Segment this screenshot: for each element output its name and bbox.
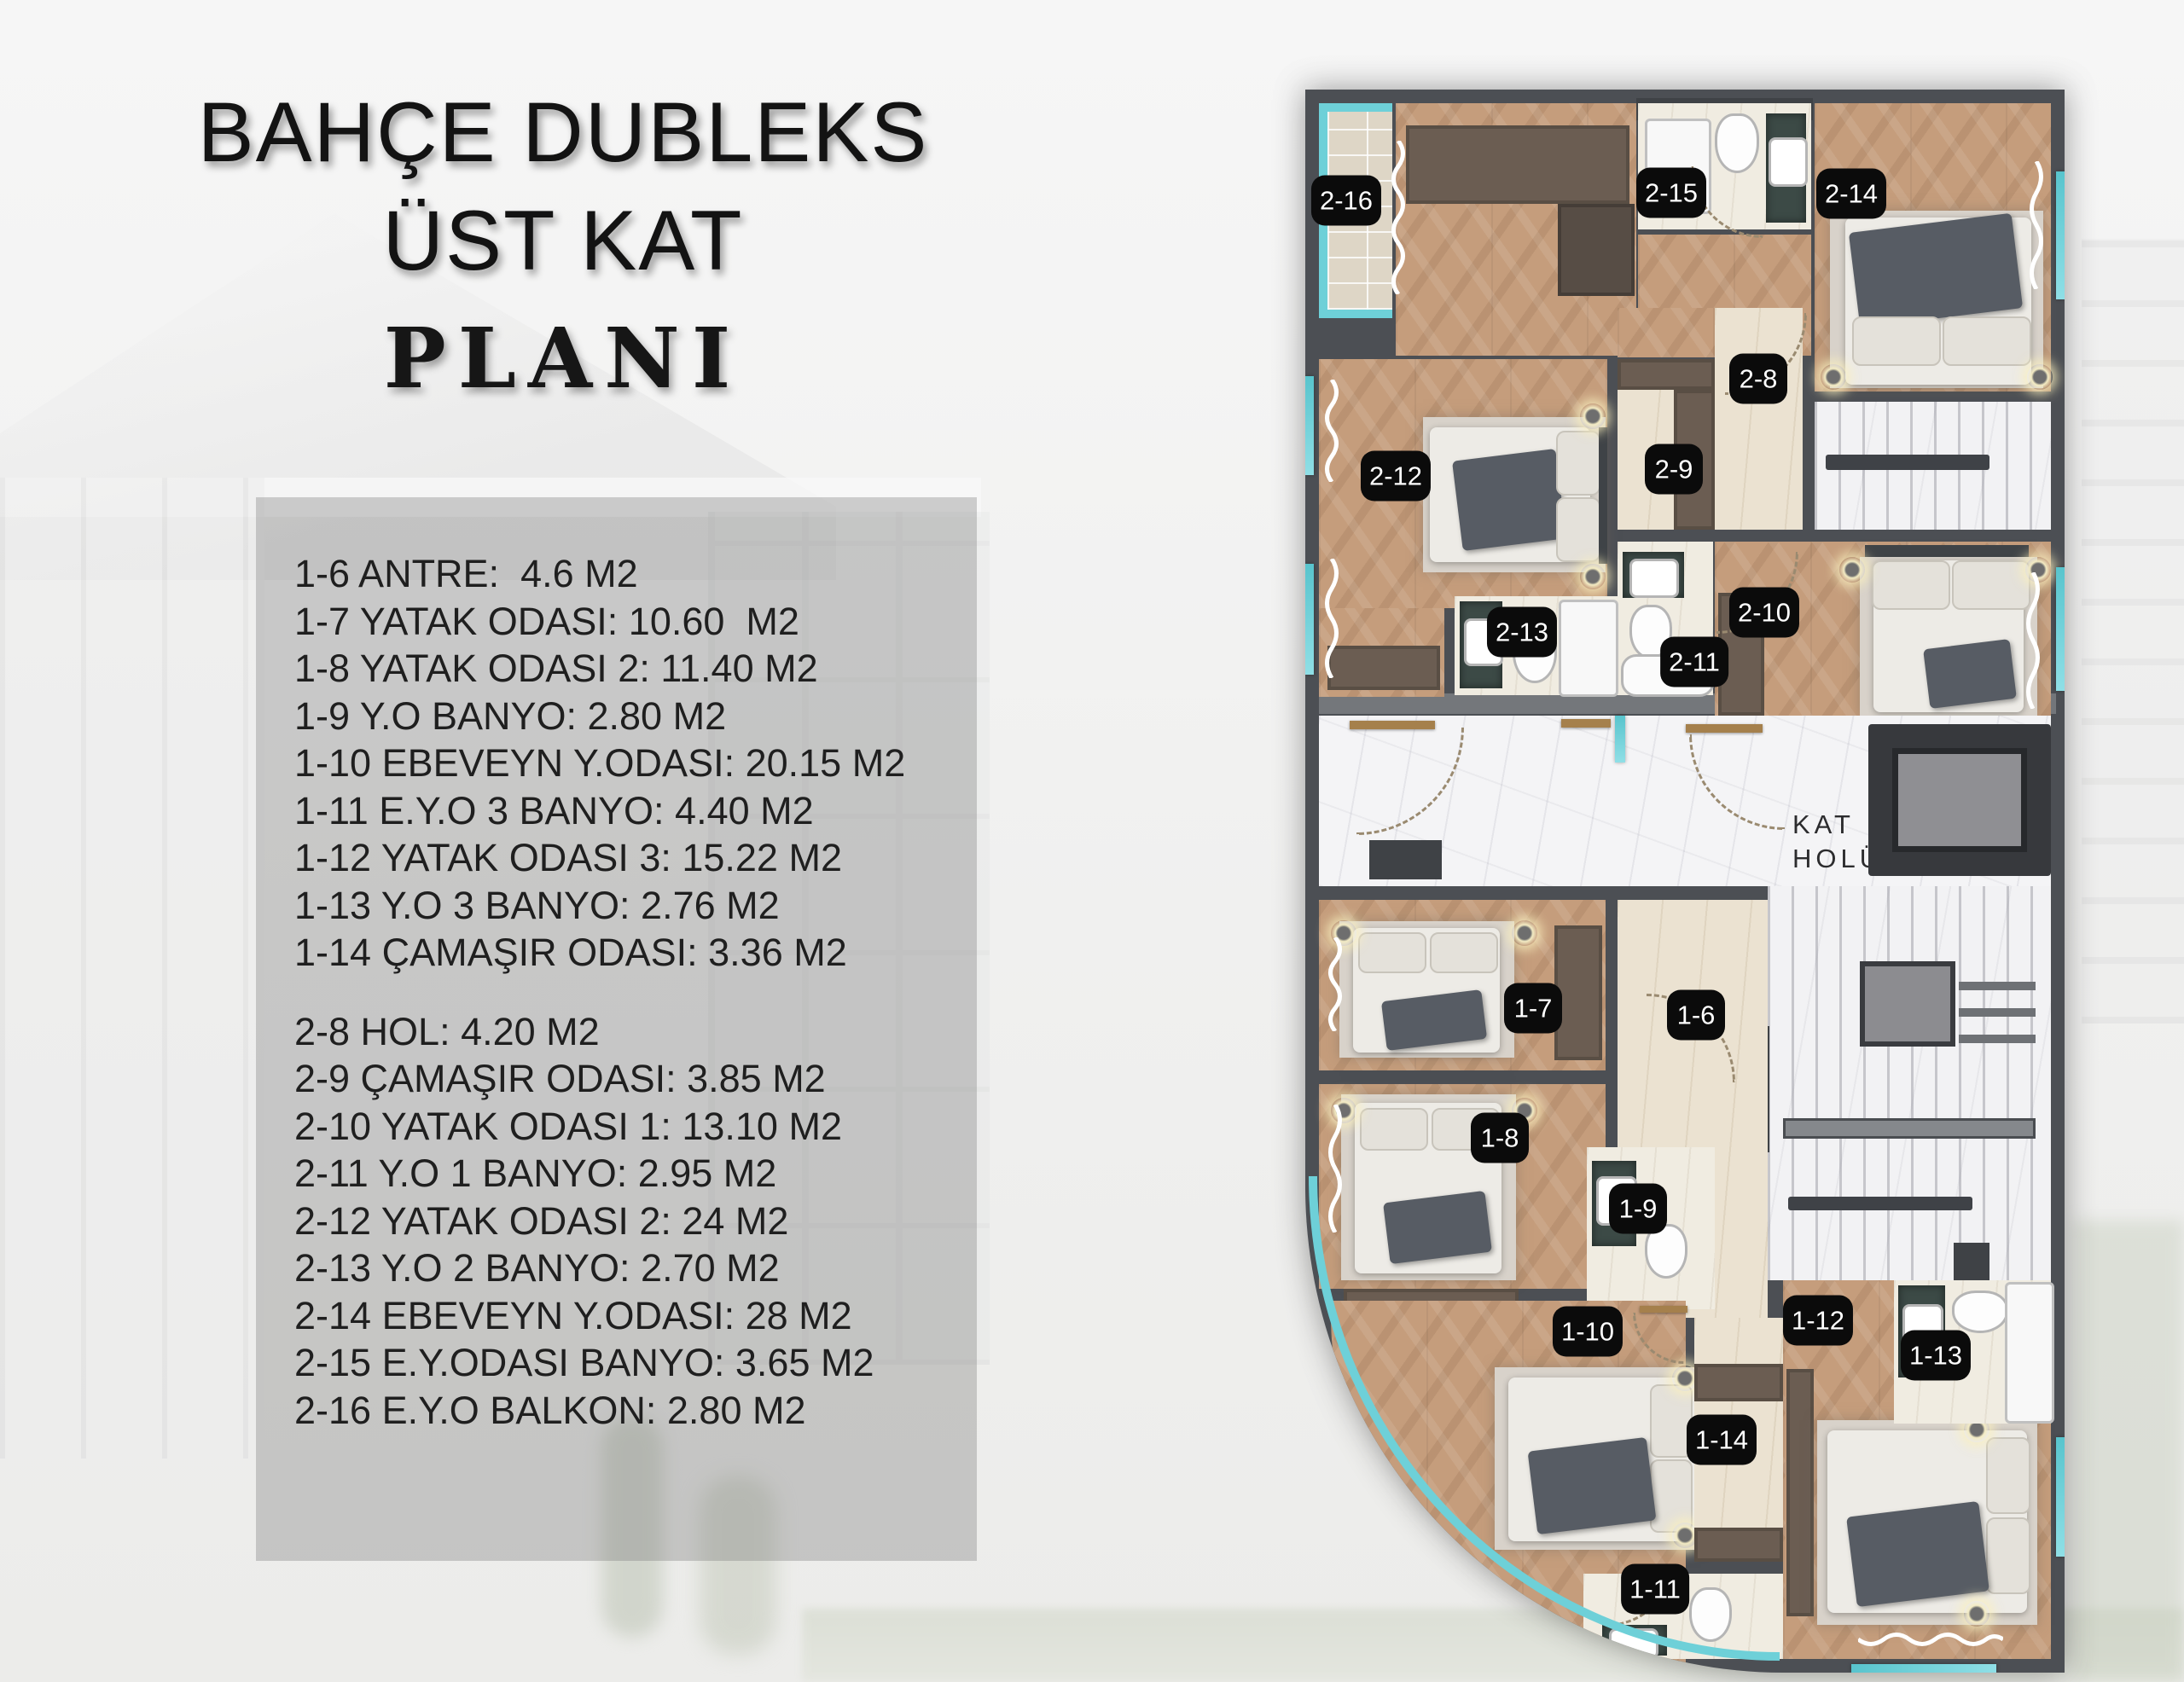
curtain bbox=[2027, 161, 2046, 289]
room-list-item: 1-7 YATAK ODASI: 10.60 M2 bbox=[294, 598, 905, 646]
room-badge-2-11: 2-11 bbox=[1660, 637, 1728, 687]
room-badge-1-10: 1-10 bbox=[1553, 1307, 1623, 1357]
sconce-light bbox=[1821, 364, 1846, 390]
page-title-line1: BAHÇE DUBLEKS bbox=[145, 78, 981, 187]
bed-throw bbox=[1846, 1501, 1989, 1607]
sconce-light bbox=[1580, 564, 1606, 589]
curtain bbox=[1858, 1630, 2003, 1649]
page-title-line3: PLANI bbox=[145, 310, 981, 407]
pillow bbox=[1986, 1437, 2030, 1514]
bed-throw bbox=[1452, 449, 1566, 551]
room-badge-2-13: 2-13 bbox=[1487, 607, 1557, 658]
sink bbox=[1629, 559, 1679, 598]
room-badge-1-14: 1-14 bbox=[1687, 1415, 1757, 1465]
pillow bbox=[1430, 932, 1498, 973]
window-glass bbox=[2056, 171, 2065, 299]
page: BAHÇE DUBLEKS ÜST KAT PLANI 1-6 ANTRE: 4… bbox=[0, 0, 2184, 1682]
wardrobe bbox=[1558, 204, 1635, 296]
room-list-item: 2-8 HOL: 4.20 M2 bbox=[294, 1008, 905, 1056]
room-list-item: 1-11 E.Y.O 3 BANYO: 4.40 M2 bbox=[294, 787, 905, 835]
pillow bbox=[1556, 431, 1600, 496]
pillow bbox=[1943, 316, 2031, 366]
wall bbox=[1954, 1243, 1989, 1282]
sconce-light bbox=[1839, 557, 1865, 583]
curtain bbox=[1326, 1105, 1345, 1232]
room-badge-2-9: 2-9 bbox=[1645, 444, 1703, 495]
sconce-light bbox=[1512, 920, 1537, 946]
hall-cabinet bbox=[1369, 840, 1442, 879]
elevator-cab bbox=[1892, 748, 2027, 852]
bed-headboard bbox=[1599, 427, 1607, 564]
room-badge-2-15: 2-15 bbox=[1636, 168, 1706, 218]
wardrobe bbox=[1406, 125, 1629, 204]
shower-tray bbox=[2005, 1282, 2054, 1424]
room-list-item: 2-9 ÇAMAŞIR ODASI: 3.85 M2 bbox=[294, 1055, 905, 1103]
room-list-item: 1-14 ÇAMAŞIR ODASI: 3.36 M2 bbox=[294, 929, 905, 977]
pillow bbox=[1556, 497, 1600, 562]
window-glass bbox=[1305, 564, 1314, 675]
toilet bbox=[1952, 1290, 2008, 1333]
stair-handrail bbox=[1788, 1197, 1972, 1210]
pillow bbox=[1852, 316, 1941, 366]
room-badge-1-9: 1-9 bbox=[1609, 1184, 1667, 1234]
sink bbox=[1769, 137, 1808, 187]
stair-handrail bbox=[1826, 455, 1989, 470]
page-title-line2: ÜST KAT bbox=[145, 187, 981, 295]
background-house-wall bbox=[0, 478, 264, 1459]
bed-throw bbox=[1849, 213, 2023, 328]
room-list-item: 2-11 Y.O 1 BANYO: 2.95 M2 bbox=[294, 1150, 905, 1198]
room-list-item: 2-16 E.Y.O BALKON: 2.80 M2 bbox=[294, 1387, 905, 1435]
room-list-item: 1-12 YATAK ODASI 3: 15.22 M2 bbox=[294, 834, 905, 882]
door-leaf bbox=[1686, 724, 1763, 733]
room-list-item: 2-12 YATAK ODASI 2: 24 M2 bbox=[294, 1198, 905, 1245]
glass-door bbox=[1615, 716, 1625, 763]
room-list-item: 1-9 Y.O BANYO: 2.80 M2 bbox=[294, 693, 905, 740]
background-plants bbox=[2073, 1220, 2184, 1680]
curtain bbox=[1326, 937, 1345, 1031]
room-badge-2-14: 2-14 bbox=[1816, 169, 1886, 219]
room-badge-1-6: 1-6 bbox=[1667, 990, 1725, 1041]
pillow bbox=[1952, 560, 2030, 610]
room-list-unit2: 2-8 HOL: 4.20 M22-9 ÇAMAŞIR ODASI: 3.85 … bbox=[294, 1008, 905, 1435]
curtain bbox=[1322, 380, 1341, 482]
stair-landing-wall bbox=[1783, 1118, 2036, 1139]
pillow bbox=[1872, 560, 1950, 610]
pillow bbox=[1360, 1108, 1428, 1151]
sconce-light bbox=[2027, 364, 2053, 390]
room-list-item: 2-14 EBEVEYN Y.ODASI: 28 M2 bbox=[294, 1292, 905, 1340]
cabinet bbox=[1618, 359, 1715, 390]
window-glass bbox=[1851, 1664, 1996, 1673]
floor-plan: KAT HOLÜ bbox=[1305, 90, 2065, 1673]
room-list-item: 1-13 Y.O 3 BANYO: 2.76 M2 bbox=[294, 882, 905, 930]
curtain bbox=[1389, 141, 1408, 294]
bed-throw bbox=[1923, 639, 2017, 709]
room-badge-2-10: 2-10 bbox=[1729, 588, 1799, 638]
room-badge-1-13: 1-13 bbox=[1901, 1331, 1971, 1381]
toilet bbox=[1715, 113, 1759, 173]
shower-tray bbox=[1559, 600, 1618, 697]
room-badge-1-8: 1-8 bbox=[1471, 1113, 1529, 1163]
curtain bbox=[1322, 559, 1341, 678]
stair-treads bbox=[1959, 970, 2036, 1043]
room-list-item: 1-10 EBEVEYN Y.ODASI: 20.15 M2 bbox=[294, 739, 905, 787]
room-badge-2-12: 2-12 bbox=[1361, 451, 1431, 502]
room-list-item: 1-8 YATAK ODASI 2: 11.40 M2 bbox=[294, 645, 905, 693]
bed-headboard bbox=[1865, 545, 2029, 557]
room-list-item: 2-13 Y.O 2 BANYO: 2.70 M2 bbox=[294, 1244, 905, 1292]
room-badge-1-12: 1-12 bbox=[1783, 1296, 1853, 1346]
room-list-item: 2-10 YATAK ODASI 1: 13.10 M2 bbox=[294, 1103, 905, 1151]
wardrobe bbox=[1327, 646, 1440, 690]
staircase-lower bbox=[1768, 886, 2051, 1280]
window-glass bbox=[2056, 567, 2065, 691]
sconce-light bbox=[1964, 1601, 1989, 1627]
pillow bbox=[1358, 932, 1426, 973]
pillow bbox=[1986, 1517, 2030, 1594]
room-hall-upper bbox=[1618, 308, 1716, 357]
window-glass bbox=[2056, 1437, 2065, 1557]
window-glass bbox=[1305, 376, 1314, 475]
title-block: BAHÇE DUBLEKS ÜST KAT PLANI bbox=[145, 78, 981, 407]
room-list-gap bbox=[294, 977, 905, 1008]
wardrobe bbox=[1786, 1369, 1814, 1616]
room-badge-2-8: 2-8 bbox=[1729, 354, 1787, 404]
door-leaf bbox=[1561, 719, 1611, 728]
room-list: 1-6 ANTRE: 4.6 M21-7 YATAK ODASI: 10.60 … bbox=[294, 550, 905, 1434]
room-list-unit1: 1-6 ANTRE: 4.6 M21-7 YATAK ODASI: 10.60 … bbox=[294, 550, 905, 977]
room-list-item: 1-6 ANTRE: 4.6 M2 bbox=[294, 550, 905, 598]
room-badge-2-16: 2-16 bbox=[1311, 176, 1381, 226]
room-badge-1-7: 1-7 bbox=[1504, 983, 1562, 1034]
room-badge-1-11: 1-11 bbox=[1621, 1564, 1689, 1615]
room-list-item: 2-15 E.Y.ODASI BANYO: 3.65 M2 bbox=[294, 1339, 905, 1387]
curtain bbox=[2024, 572, 2042, 709]
sconce-light bbox=[1580, 403, 1606, 429]
background-house-right bbox=[2082, 239, 2184, 1024]
room-list-panel: 1-6 ANTRE: 4.6 M21-7 YATAK ODASI: 10.60 … bbox=[256, 497, 977, 1561]
stair-shaft bbox=[1860, 961, 1955, 1047]
